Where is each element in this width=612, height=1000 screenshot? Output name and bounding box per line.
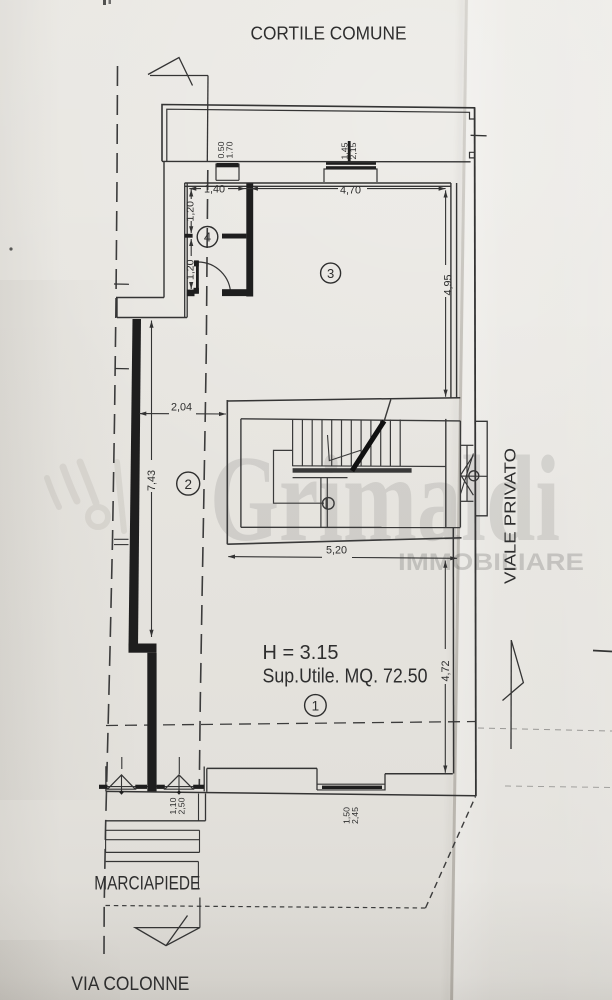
svg-text:1: 1: [312, 698, 320, 713]
svg-text:H = 3.15: H = 3.15: [263, 641, 339, 664]
svg-text:MARCIAPIEDE: MARCIAPIEDE: [94, 874, 200, 895]
svg-text:2,50: 2,50: [177, 797, 187, 814]
svg-text:7,43: 7,43: [146, 470, 158, 491]
svg-text:4,72: 4,72: [440, 660, 452, 681]
svg-text:4,70: 4,70: [340, 185, 361, 197]
svg-text:1,40: 1,40: [204, 184, 225, 196]
svg-text:2,04: 2,04: [171, 402, 192, 414]
svg-text:4: 4: [204, 230, 211, 245]
svg-text:1,45: 1,45: [340, 142, 350, 159]
svg-text:CORTILE COMUNE: CORTILE COMUNE: [251, 23, 407, 44]
svg-text:2,45: 2,45: [350, 807, 360, 824]
svg-text:VIA COLONNE: VIA COLONNE: [71, 974, 189, 995]
svg-text:1,20: 1,20: [185, 201, 197, 222]
svg-text:2: 2: [184, 477, 192, 492]
svg-text:Sup.Utile. MQ. 72.50: Sup.Utile. MQ. 72.50: [263, 666, 428, 688]
svg-text:Grimaldi: Grimaldi: [210, 430, 560, 567]
svg-text:3: 3: [327, 266, 334, 281]
svg-text:VIALE PRIVATO: VIALE PRIVATO: [503, 448, 520, 584]
svg-text:0.50: 0.50: [216, 141, 226, 158]
svg-text:4,95: 4,95: [443, 274, 455, 295]
svg-text:2,15: 2,15: [348, 142, 358, 159]
svg-text:1,50: 1,50: [342, 807, 352, 824]
svg-text:IMMOBILIARE: IMMOBILIARE: [398, 549, 584, 576]
svg-text:1,10: 1,10: [168, 797, 178, 814]
svg-text:1,20: 1,20: [185, 259, 197, 280]
svg-text:1.70: 1.70: [225, 141, 235, 158]
svg-text:5,20: 5,20: [326, 545, 347, 557]
